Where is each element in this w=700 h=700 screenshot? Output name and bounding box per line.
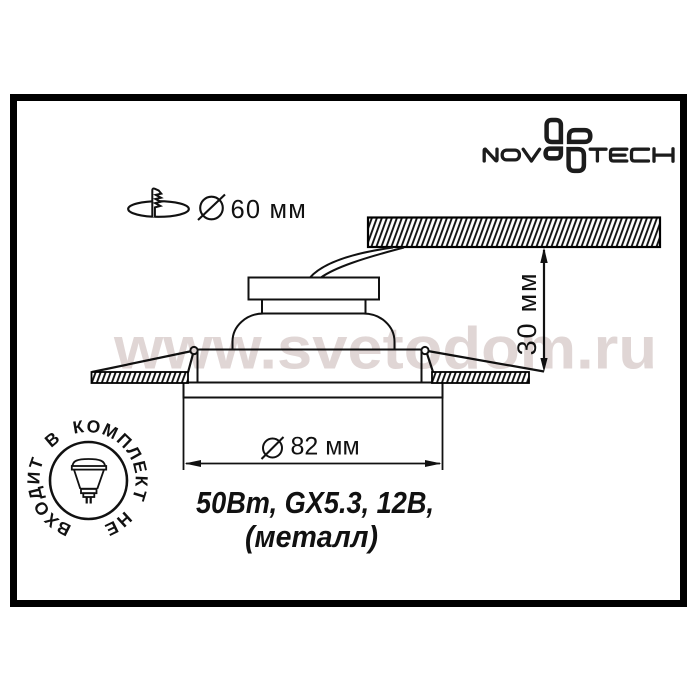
svg-text:ВХОДИТ В КОМПЛЕКТ НЕ: ВХОДИТ В КОМПЛЕКТ НЕ xyxy=(23,416,151,541)
svg-text:50Вт, GX5.3, 12В,: 50Вт, GX5.3, 12В, xyxy=(196,485,434,520)
svg-text:82 мм: 82 мм xyxy=(291,433,360,461)
svg-text:(металл): (металл) xyxy=(245,519,378,554)
svg-text:60 мм: 60 мм xyxy=(231,196,308,224)
svg-text:www.svetodom.ru: www.svetodom.ru xyxy=(113,316,657,382)
